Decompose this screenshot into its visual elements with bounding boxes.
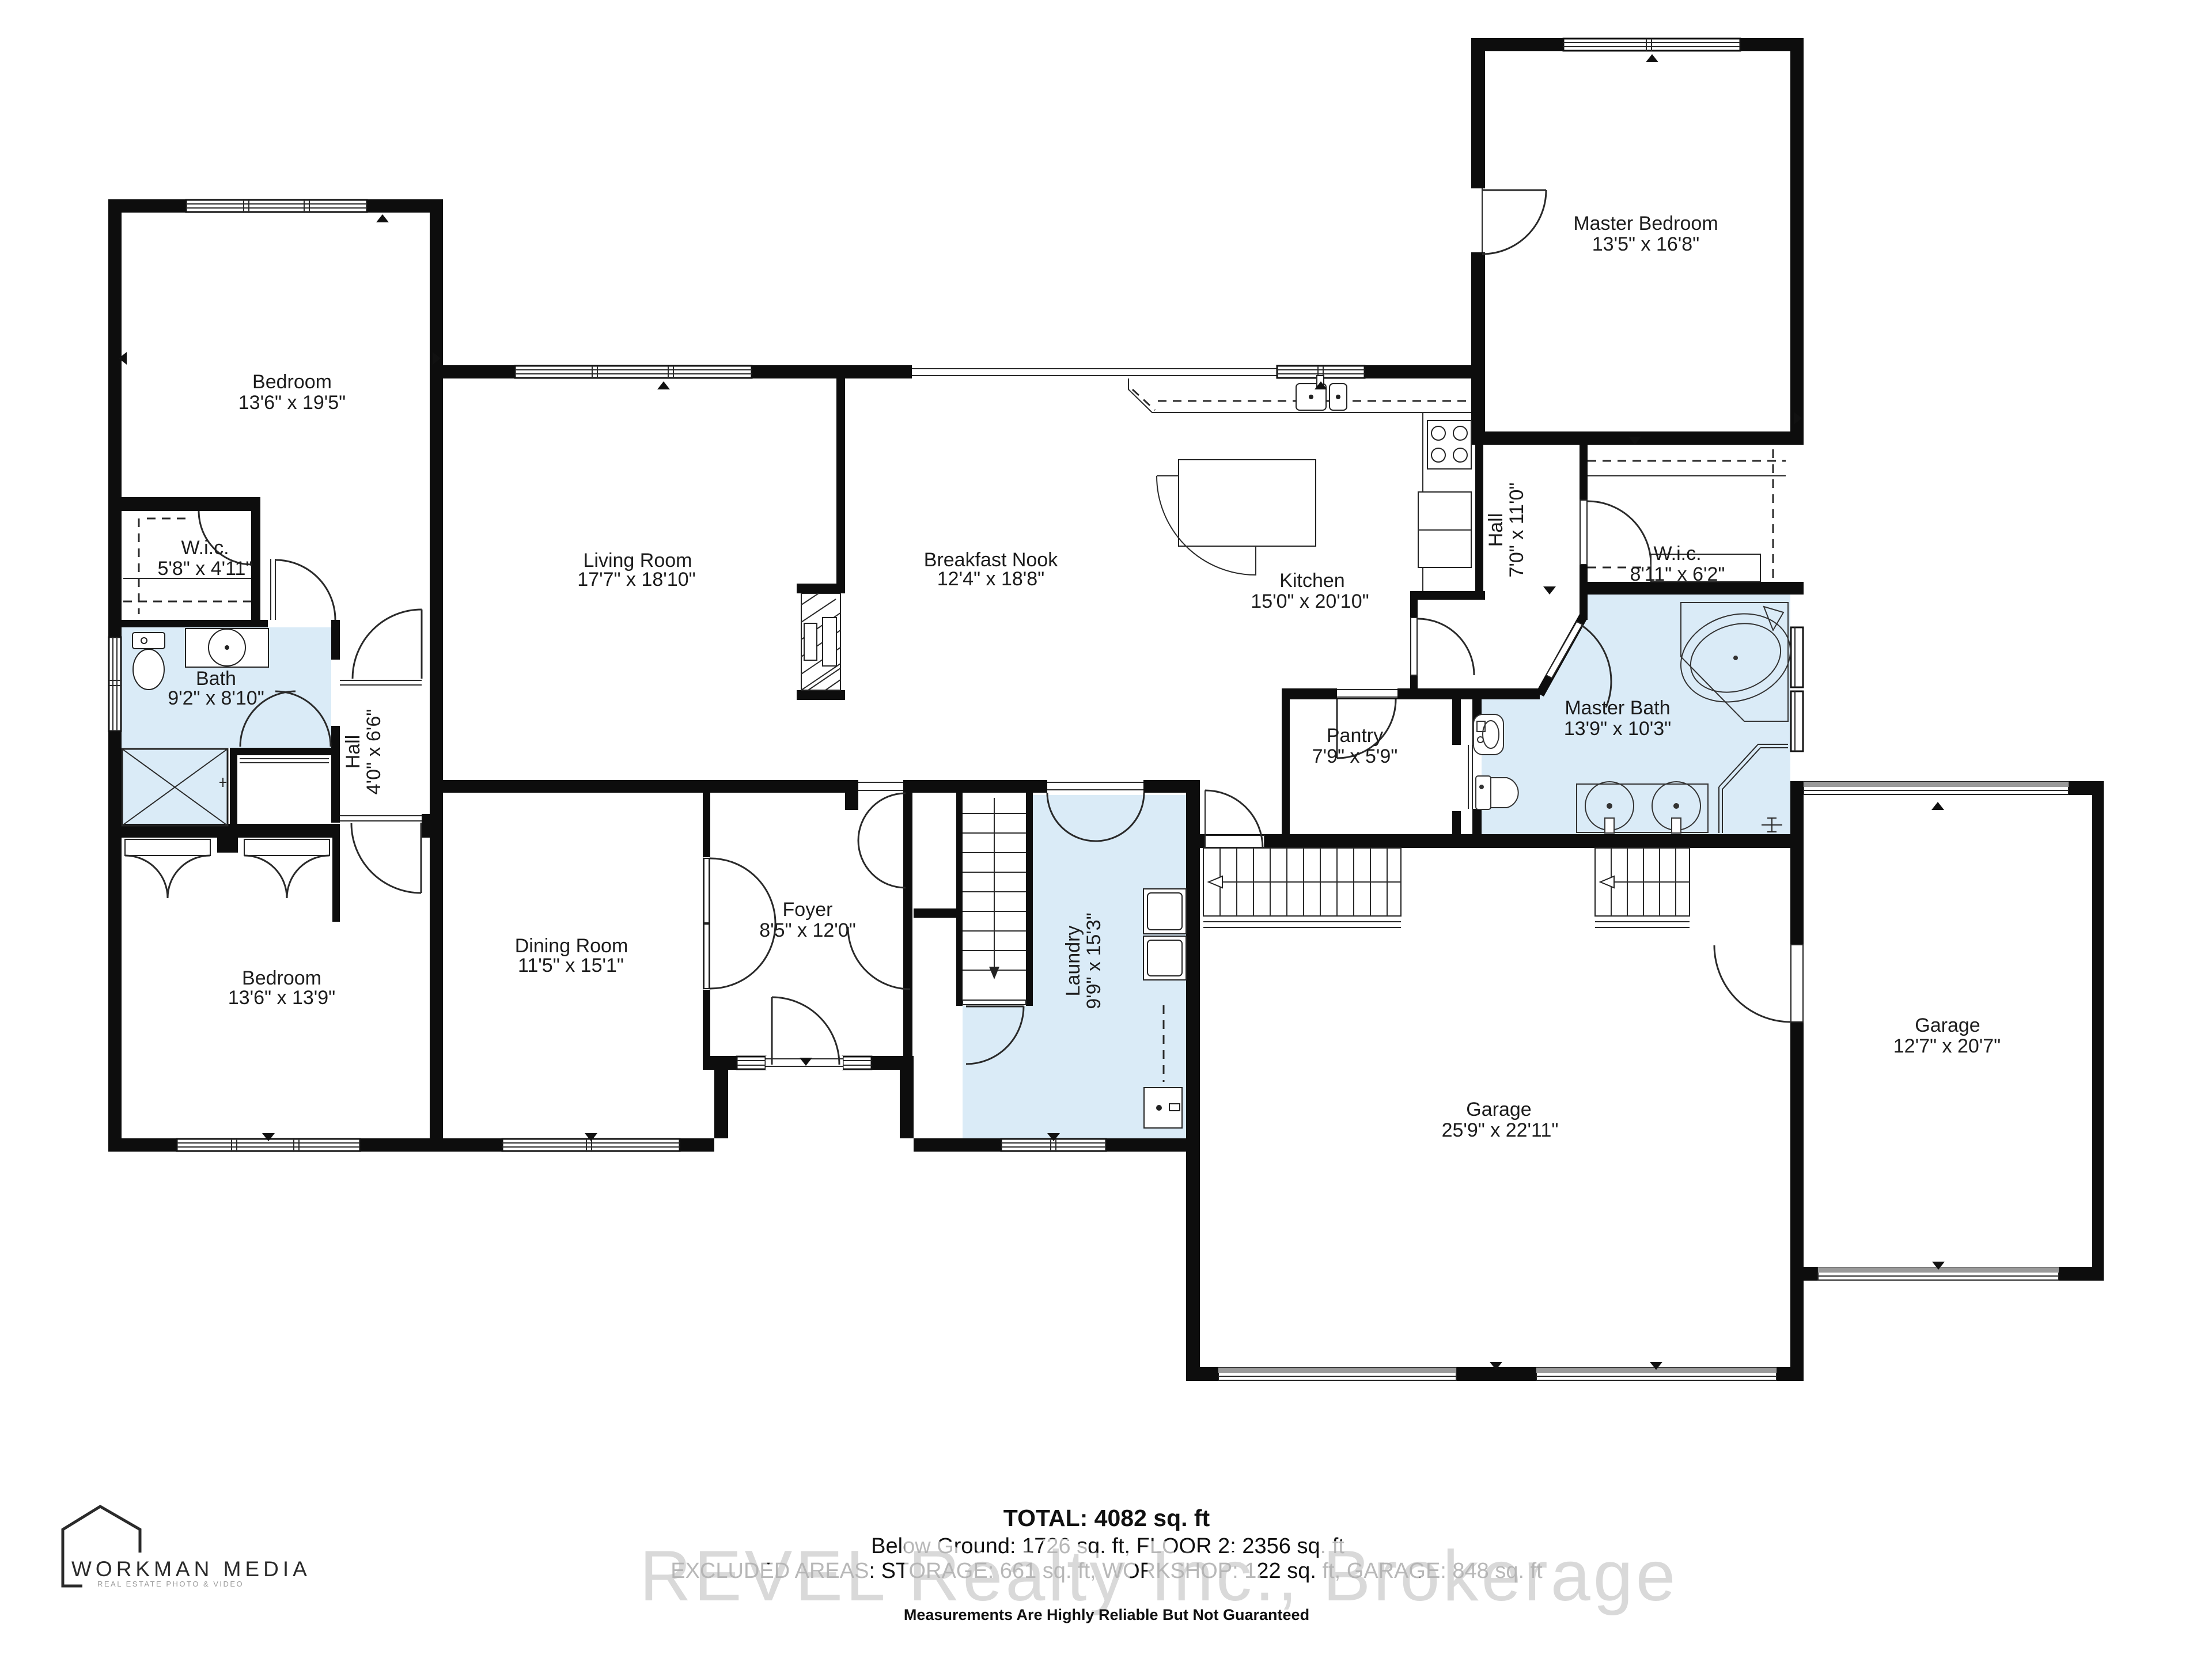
svg-text:Pantry: Pantry (1327, 725, 1383, 747)
svg-text:9'9" x 15'3": 9'9" x 15'3" (1083, 913, 1105, 1009)
svg-text:7'0" x 11'0": 7'0" x 11'0" (1506, 482, 1528, 577)
svg-text:REAL ESTATE PHOTO & VIDEO: REAL ESTATE PHOTO & VIDEO (97, 1580, 244, 1588)
svg-text:11'5" x 15'1": 11'5" x 15'1" (518, 955, 624, 976)
svg-text:Garage: Garage (1466, 1099, 1531, 1120)
svg-text:25'9" x 22'11": 25'9" x 22'11" (1442, 1119, 1559, 1141)
svg-text:17'7" x 18'10": 17'7" x 18'10" (577, 569, 695, 590)
svg-text:12'7" x 20'7": 12'7" x 20'7" (1893, 1035, 2001, 1057)
svg-text:Bedroom: Bedroom (252, 371, 332, 393)
svg-text:Bedroom: Bedroom (242, 967, 321, 989)
svg-text:TOTAL: 4082 sq. ft: TOTAL: 4082 sq. ft (1003, 1505, 1210, 1531)
svg-text:W.i.c.: W.i.c. (1653, 543, 1701, 565)
svg-text:Bath: Bath (196, 668, 236, 690)
svg-text:REVEL Realty Inc., Brokerage: REVEL Realty Inc., Brokerage (639, 1536, 1678, 1616)
svg-text:8'11" x 6'2": 8'11" x 6'2" (1630, 563, 1725, 585)
svg-text:13'6" x 13'9": 13'6" x 13'9" (228, 987, 335, 1009)
svg-text:13'6" x 19'5": 13'6" x 19'5" (238, 392, 346, 414)
svg-text:12'4" x 18'8": 12'4" x 18'8" (937, 568, 1044, 590)
svg-text:9'2" x 8'10": 9'2" x 8'10" (168, 687, 264, 709)
svg-text:Master Bath: Master Bath (1565, 697, 1670, 719)
svg-text:Master Bedroom: Master Bedroom (1573, 213, 1718, 234)
svg-text:Laundry: Laundry (1062, 926, 1084, 997)
svg-text:Garage: Garage (1915, 1014, 1980, 1036)
svg-text:Hall: Hall (342, 735, 364, 769)
svg-text:Foyer: Foyer (783, 899, 833, 921)
svg-text:4'0" x 6'6": 4'0" x 6'6" (363, 709, 385, 795)
svg-text:W.i.c.: W.i.c. (181, 537, 229, 559)
svg-text:WORKMAN MEDIA: WORKMAN MEDIA (71, 1557, 311, 1581)
svg-text:Dining Room: Dining Room (515, 935, 628, 957)
svg-text:8'5" x 12'0": 8'5" x 12'0" (759, 919, 856, 941)
svg-text:13'5" x 16'8": 13'5" x 16'8" (1592, 233, 1699, 255)
svg-text:Hall: Hall (1485, 513, 1507, 547)
svg-text:5'8" x 4'11": 5'8" x 4'11" (157, 558, 252, 580)
svg-text:15'0" x 20'10": 15'0" x 20'10" (1251, 590, 1369, 612)
svg-text:7'9" x 5'9": 7'9" x 5'9" (1312, 745, 1398, 767)
svg-text:Kitchen: Kitchen (1279, 570, 1344, 592)
svg-text:13'9" x 10'3": 13'9" x 10'3" (1564, 718, 1671, 740)
svg-text:Measurements Are Highly Reliab: Measurements Are Highly Reliable But Not… (904, 1606, 1309, 1623)
